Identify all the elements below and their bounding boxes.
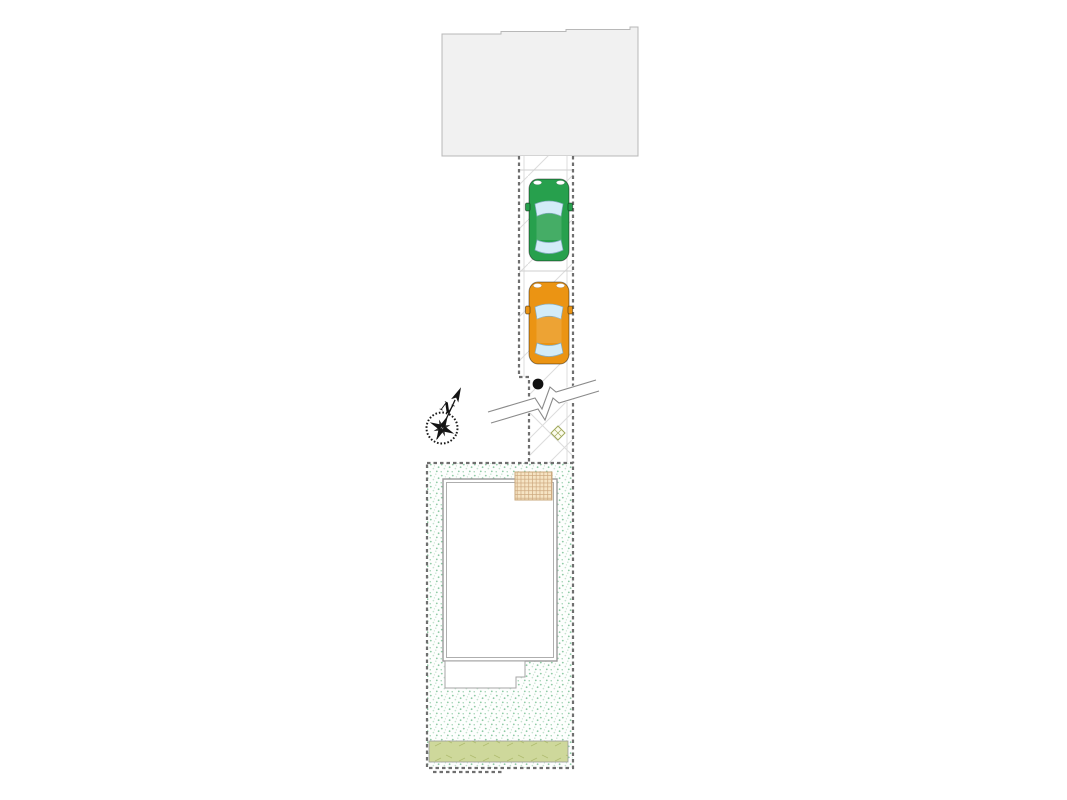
entrance-porch [515, 472, 552, 500]
house-footprint [443, 479, 557, 661]
utility-pole-dot [533, 379, 544, 390]
hedge-texture [429, 741, 568, 762]
porch-tile-grid [515, 472, 552, 500]
property-lot [427, 463, 573, 772]
car-green [525, 179, 572, 261]
hedge-strip [429, 741, 568, 762]
car-orange [525, 282, 572, 364]
north-label: N [437, 399, 456, 419]
site-plan-drawing: N [0, 0, 1067, 800]
adjacent-building-block [442, 27, 638, 156]
compass-rose: N [421, 381, 475, 449]
site-plan-canvas: N [0, 0, 1067, 800]
compass-arrowhead [451, 386, 465, 403]
terrace-step [445, 661, 525, 688]
